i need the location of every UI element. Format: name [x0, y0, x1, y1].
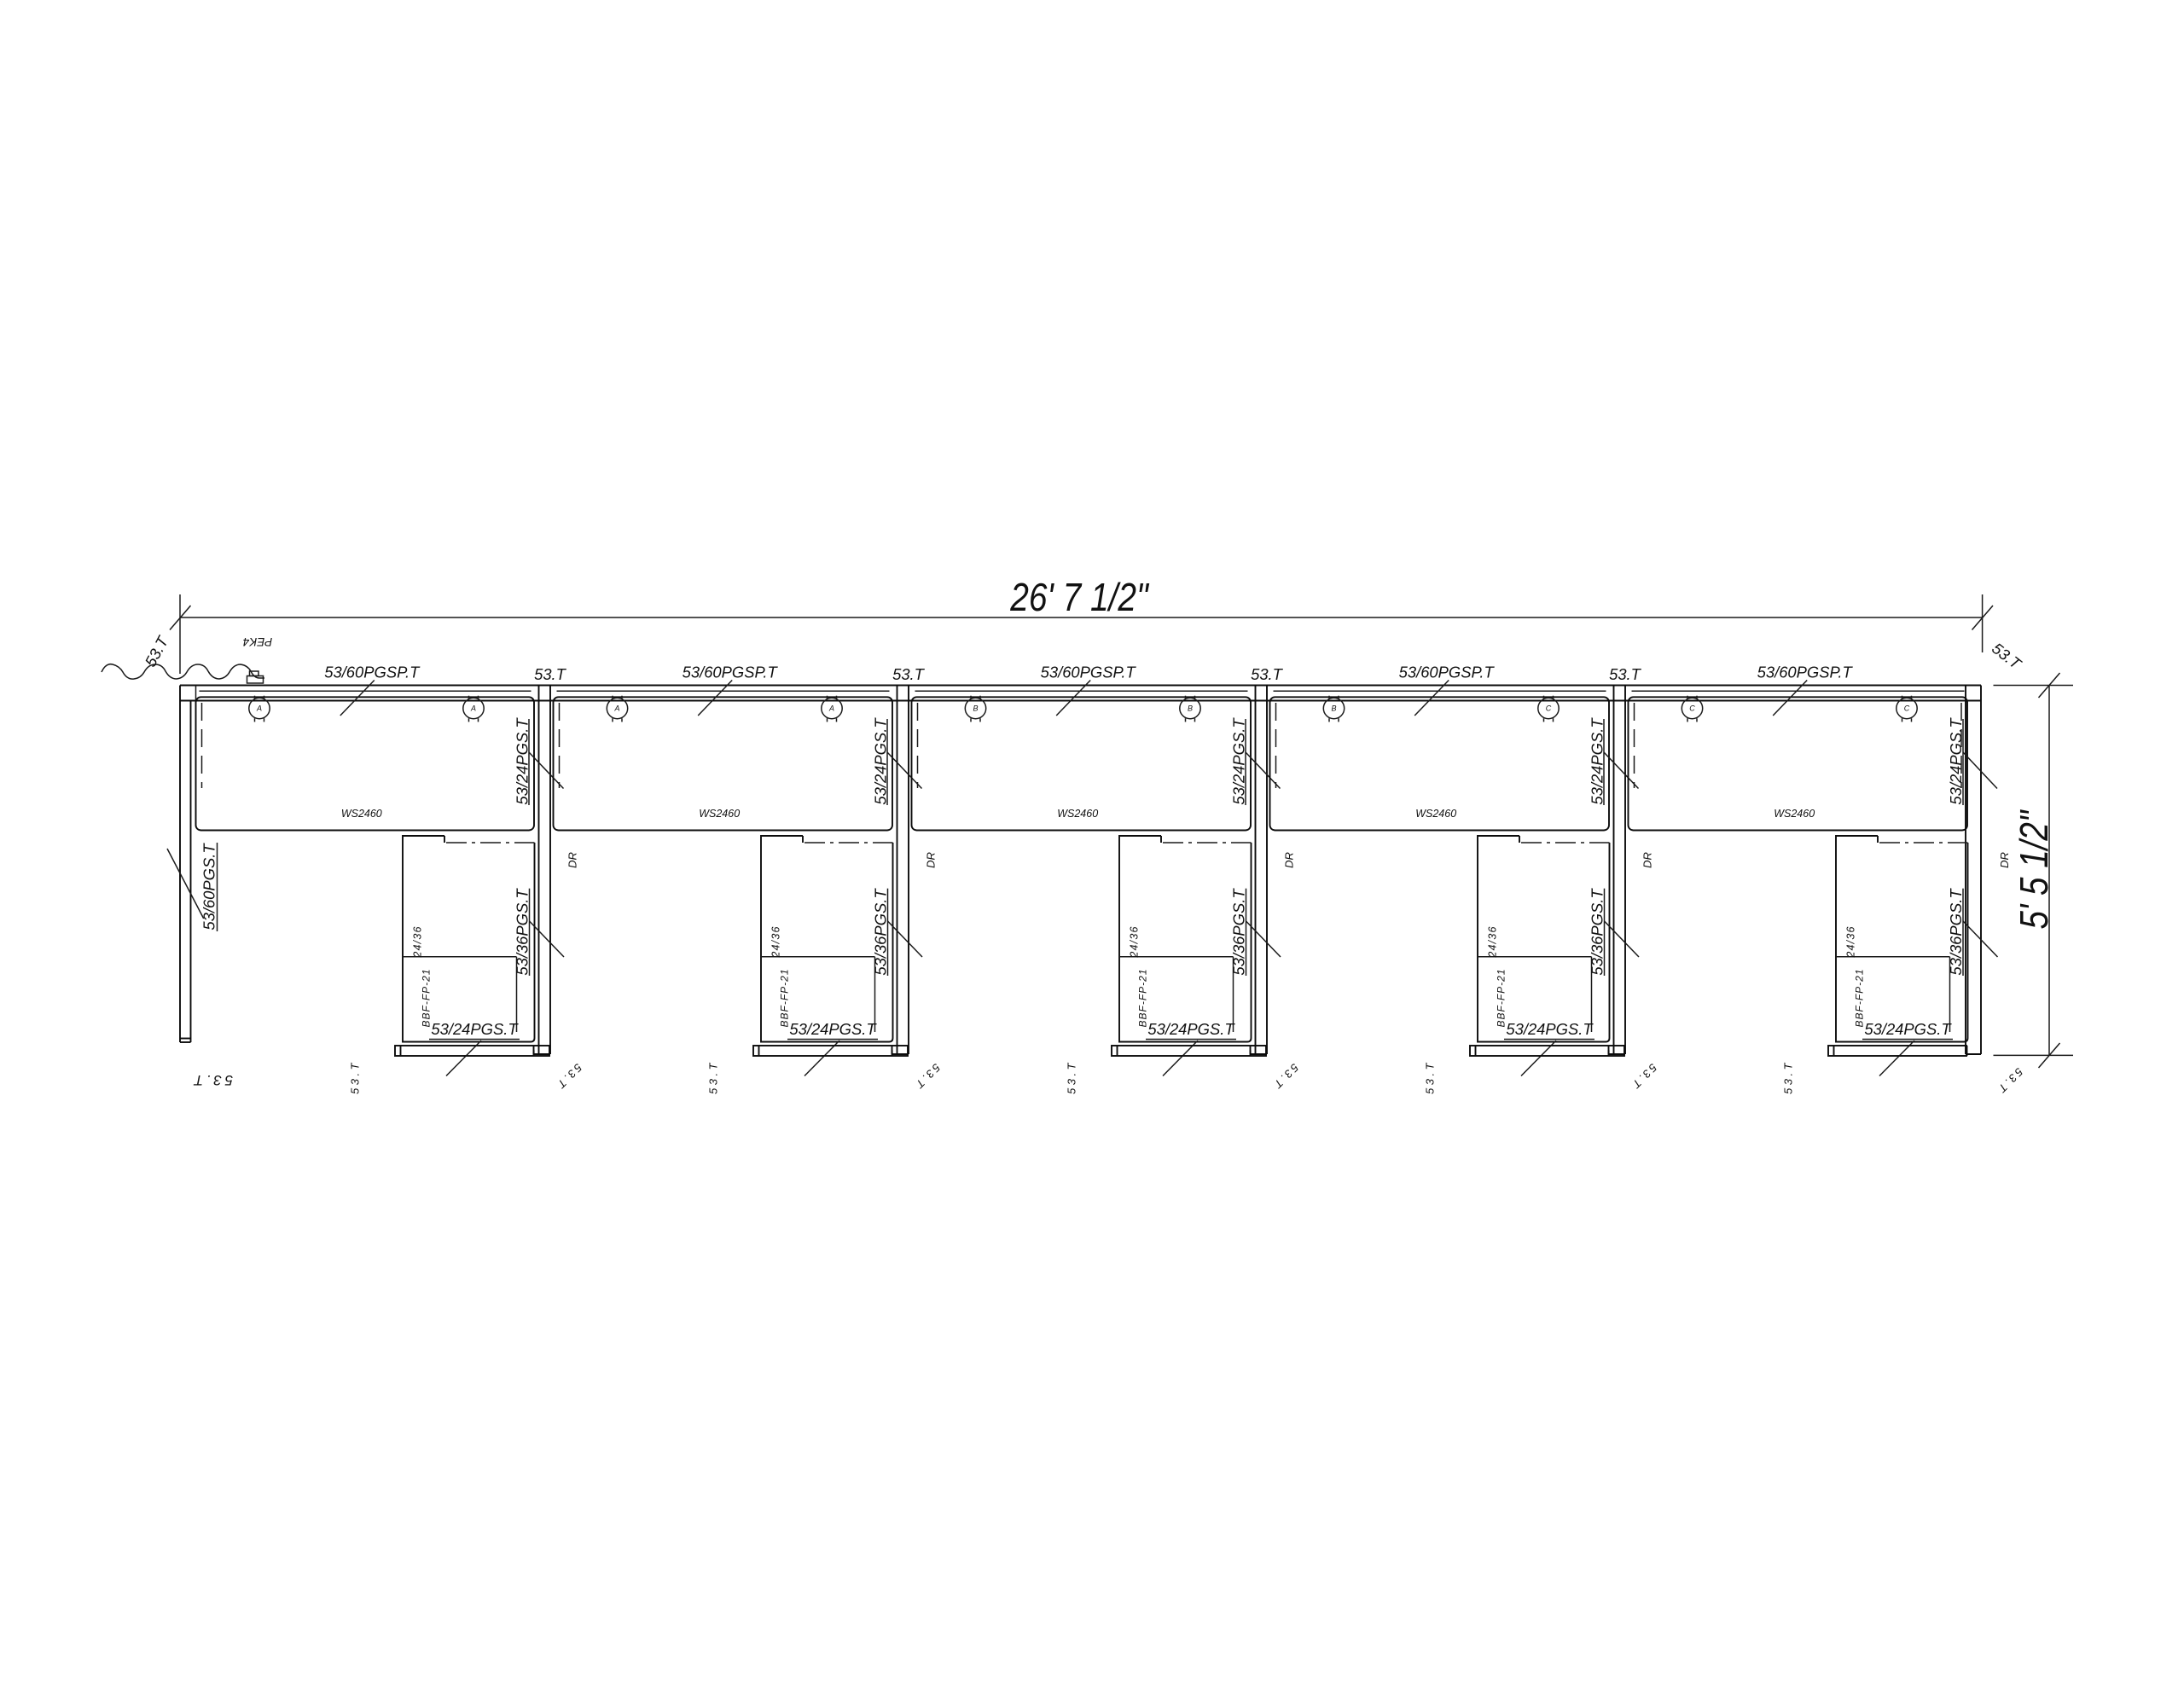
- svg-text:53.T: 53.T: [534, 665, 567, 683]
- svg-text:53.T: 53.T: [892, 665, 926, 683]
- svg-text:53/60PGSP.T: 53/60PGSP.T: [1041, 664, 1137, 681]
- svg-text:C: C: [1546, 704, 1552, 713]
- svg-text:A: A: [828, 704, 834, 713]
- svg-text:53/60PGSP.T: 53/60PGSP.T: [1399, 664, 1496, 681]
- svg-text:A: A: [470, 704, 476, 713]
- svg-text:53/24PGS.T: 53/24PGS.T: [1147, 1020, 1235, 1038]
- svg-text:B: B: [973, 704, 978, 713]
- svg-text:24/36: 24/36: [1845, 925, 1857, 958]
- svg-text:DR: DR: [1283, 852, 1296, 868]
- svg-text:BBF-FP-21: BBF-FP-21: [1854, 968, 1866, 1027]
- svg-text:BBF-FP-21: BBF-FP-21: [1137, 968, 1149, 1027]
- svg-text:DR: DR: [566, 852, 579, 868]
- svg-text:53.T: 53.T: [1251, 665, 1284, 683]
- svg-text:53/60PGSP.T: 53/60PGSP.T: [324, 664, 421, 681]
- svg-text:53.T: 53.T: [1609, 665, 1642, 683]
- svg-text:B: B: [1188, 704, 1193, 713]
- svg-text:C: C: [1689, 704, 1695, 713]
- svg-text:WS2460: WS2460: [1774, 808, 1815, 820]
- svg-text:PEK4: PEK4: [243, 635, 273, 648]
- svg-text:A: A: [256, 704, 262, 713]
- svg-text:BBF-FP-21: BBF-FP-21: [421, 968, 433, 1027]
- svg-text:24/36: 24/36: [1487, 925, 1499, 958]
- svg-text:53/36PGS.T: 53/36PGS.T: [1947, 888, 1965, 976]
- svg-text:53.T: 53.T: [191, 1072, 233, 1088]
- svg-text:24/36: 24/36: [770, 925, 782, 958]
- svg-text:53/60PGSP.T: 53/60PGSP.T: [682, 664, 779, 681]
- svg-text:WS2460: WS2460: [699, 808, 740, 820]
- svg-text:B: B: [1331, 704, 1336, 713]
- svg-text:BBF-FP-21: BBF-FP-21: [1496, 968, 1507, 1027]
- svg-text:BBF-FP-21: BBF-FP-21: [779, 968, 791, 1027]
- svg-text:WS2460: WS2460: [1057, 808, 1098, 820]
- svg-text:53.T: 53.T: [707, 1060, 720, 1094]
- svg-text:DR: DR: [925, 852, 938, 868]
- svg-text:53/60PGSP.T: 53/60PGSP.T: [1757, 664, 1854, 681]
- svg-text:53.T: 53.T: [349, 1060, 362, 1094]
- svg-text:DR: DR: [1641, 852, 1654, 868]
- svg-text:C: C: [1904, 704, 1910, 713]
- svg-text:53/24PGS.T: 53/24PGS.T: [431, 1020, 519, 1038]
- svg-text:WS2460: WS2460: [1415, 808, 1456, 820]
- svg-text:53/36PGS.T: 53/36PGS.T: [1589, 888, 1606, 976]
- svg-text:26' 7 1/2": 26' 7 1/2": [1009, 575, 1149, 619]
- svg-text:53/36PGS.T: 53/36PGS.T: [1230, 888, 1248, 976]
- svg-text:53.T: 53.T: [1424, 1060, 1437, 1094]
- svg-text:5' 5 1/2": 5' 5 1/2": [2012, 809, 2056, 929]
- svg-text:24/36: 24/36: [1129, 925, 1141, 958]
- svg-text:53.T: 53.T: [1066, 1060, 1078, 1094]
- svg-text:53/36PGS.T: 53/36PGS.T: [872, 888, 890, 976]
- svg-text:53/24PGS.T: 53/24PGS.T: [1947, 717, 1965, 805]
- svg-text:53/24PGS.T: 53/24PGS.T: [1864, 1020, 1952, 1038]
- svg-text:53/36PGS.T: 53/36PGS.T: [514, 888, 531, 976]
- svg-text:WS2460: WS2460: [341, 808, 382, 820]
- svg-text:53/24PGS.T: 53/24PGS.T: [1506, 1020, 1594, 1038]
- svg-text:53.T: 53.T: [1782, 1060, 1795, 1094]
- svg-text:A: A: [613, 704, 619, 713]
- svg-text:DR: DR: [1998, 852, 2011, 868]
- svg-text:53/24PGS.T: 53/24PGS.T: [789, 1020, 877, 1038]
- svg-text:24/36: 24/36: [412, 925, 424, 958]
